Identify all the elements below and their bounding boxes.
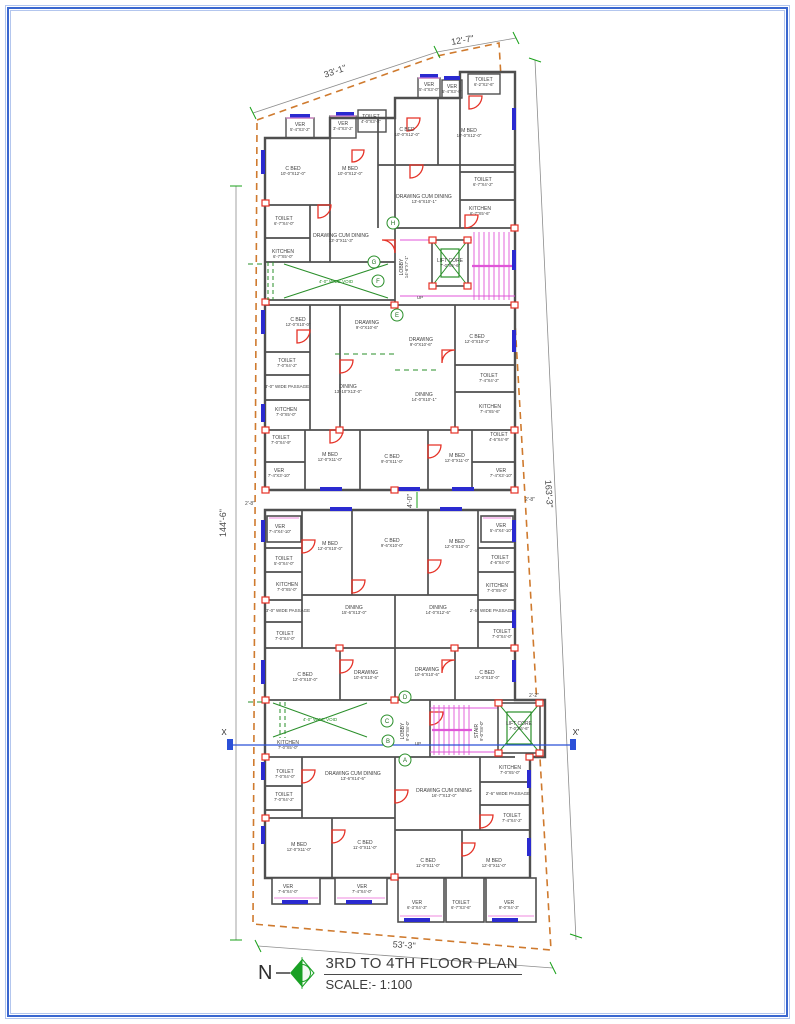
north-arrow-icon	[276, 953, 318, 993]
room-label: DRAWING9'-0"X10'-6"	[355, 320, 379, 330]
dimension-label: 53'-3"	[392, 939, 416, 951]
room-label: LOBBY14'-6"X7'-1"	[399, 255, 409, 278]
floor-plan-canvas: X X' VER5'-4"X3'-2"VER3'-4"X3'-2"TOILET4…	[0, 0, 795, 1024]
grid-bubble-label: C	[385, 719, 390, 725]
grid-bubble-label: F	[376, 279, 380, 285]
room-label: TOILET4'-6"X4'-9"	[489, 432, 509, 442]
grid-bubble-label: G	[372, 260, 377, 266]
room-label: 4'-0" WIDE VOID	[303, 717, 338, 722]
room-label: UP	[417, 295, 423, 300]
room-label: 4'-0" WIDE VOID	[319, 279, 354, 284]
room-label: DRAWING10'-6"X10'-6"	[354, 670, 379, 680]
room-label: KITCHEN6'-7"X5'-6"	[469, 206, 491, 216]
room-label: VER5'-4"X3'-2"	[290, 122, 310, 132]
room-label: 3'-0" WIDE PASSAGE	[265, 384, 309, 389]
dimension-label: 163'-3"	[543, 480, 555, 509]
room-label: TOILET7'-4"X4'-2"	[479, 373, 499, 383]
section-label-left: X	[221, 728, 227, 737]
plan-scale: SCALE:- 1:100	[324, 977, 521, 992]
dimension-label: 33'-1"	[323, 63, 348, 80]
room-label: KITCHEN7'-0"X5'-0"	[276, 582, 298, 592]
dimension-label: 144'-6"	[218, 509, 228, 537]
room-label: TOILET7'-4"X4'-2"	[502, 813, 522, 823]
room-label: TOILET6'-7"X3'-6"	[451, 900, 471, 910]
room-label: TOILET7'-0"X4'-0"	[275, 631, 295, 641]
room-label: TOILET6'-7"X4'-0"	[274, 216, 294, 226]
grid-bubble-label: H	[391, 221, 395, 227]
room-label: KITCHEN6'-7"X5'-0"	[272, 249, 294, 259]
room-label: KITCHEN7'-4"X5'-6"	[479, 404, 501, 414]
room-label: TOILET7'-0"X4'-2"	[277, 358, 297, 368]
room-label: TOILET7'-0"X4'-0"	[492, 629, 512, 639]
room-label: 2'-6" WIDE PASSAGE	[486, 791, 530, 796]
dimension-label: 2'-2"	[529, 693, 539, 699]
north-label: N	[258, 962, 272, 985]
grid-bubble-label: B	[386, 739, 390, 745]
room-label: TOILET6'-7"X4'-2"	[473, 177, 493, 187]
room-label: KITCHEN7'-0"X5'-0"	[486, 583, 508, 593]
room-label: DRAWING10'-6"X10'-6"	[415, 667, 440, 677]
plan-title: 3RD TO 4TH FLOOR PLAN	[324, 955, 521, 975]
dimension-label: 2'-8"	[525, 497, 535, 503]
room-label: TOILET5'-0"X4'-0"	[274, 556, 294, 566]
room-label: KITCHEN7'-0"X5'-0"	[275, 407, 297, 417]
dimension-label: 4'-0"	[407, 494, 414, 508]
title-block: N 3RD TO 4TH FLOOR PLAN SCALE:- 1:100	[258, 953, 522, 993]
section-label-right: X'	[573, 728, 580, 737]
room-label: LIFT CORE7'-0"X6'-6"	[437, 258, 464, 268]
dimension-label: 12'-7"	[450, 33, 474, 47]
room-label: KITCHEN7'-0"X5'-0"	[277, 740, 299, 750]
room-label: TOILET7'-0"X4'-2"	[274, 792, 294, 802]
room-label: TOILET6'-2"X2'-6"	[474, 77, 494, 87]
room-label: TOILET7'-0"X4'-9"	[271, 435, 291, 445]
room-label: TOILET7'-0"X4'-0"	[275, 769, 295, 779]
room-label: LIFT CORE7'-0"X6'-6"	[506, 721, 533, 731]
room-label: UP	[415, 741, 421, 746]
room-label: VER5'-4"X3'-0"	[419, 82, 439, 92]
room-label: TOILET4'-0"X3'-2"	[361, 114, 381, 124]
room-label: 2'-6" WIDE PASSAGE	[470, 608, 514, 613]
room-label: KITCHEN7'-0"X5'-0"	[499, 765, 521, 775]
drawing-sheet: X X' VER5'-4"X3'-2"VER3'-4"X3'-2"TOILET4…	[0, 0, 795, 1024]
room-label: DRAWING9'-0"X10'-6"	[409, 337, 433, 347]
grid-bubble-label: E	[395, 313, 399, 319]
room-label: TOILET4'-6"X4'-0"	[490, 555, 510, 565]
grid-bubble-label: D	[403, 695, 408, 701]
room-label: LOBBY9'-0"X8'-0"	[400, 721, 410, 741]
dimension-label: 2'-8"	[245, 501, 255, 507]
room-label: 3'-0" WIDE PASSAGE	[266, 608, 310, 613]
grid-bubble-label: A	[403, 758, 407, 764]
